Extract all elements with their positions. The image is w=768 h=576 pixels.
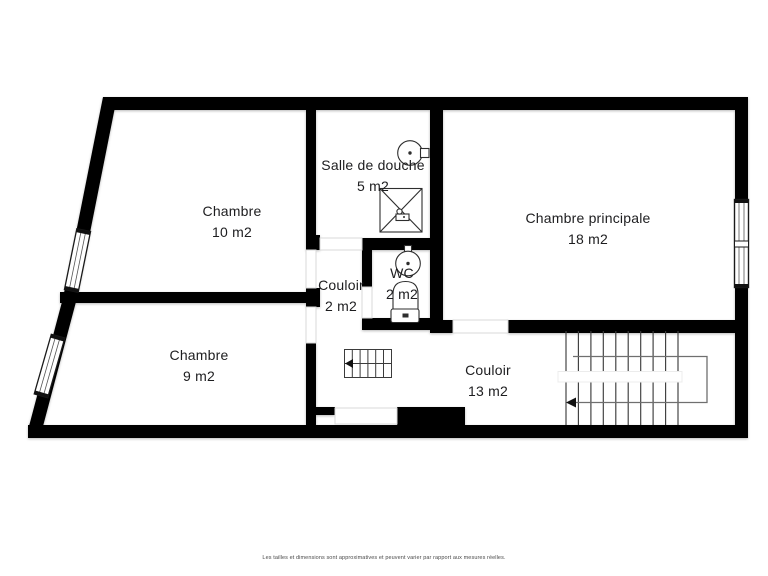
door-opening [306, 250, 316, 288]
fixtures-layer [380, 141, 429, 323]
small-staircase-icon [345, 350, 392, 378]
wall-right-upper [735, 97, 748, 200]
wall-couloir-left-top [306, 97, 316, 237]
wall-principale-left [430, 97, 443, 333]
walls-layer [28, 97, 748, 438]
door-opening [320, 238, 362, 250]
window [735, 200, 749, 288]
staircase-icon [558, 331, 707, 425]
door-opening [362, 287, 372, 318]
floor-plan-drawing [0, 0, 768, 576]
door-jamb [306, 288, 320, 307]
door-jamb [306, 235, 320, 250]
wall-entry-stub [306, 407, 335, 415]
window [64, 229, 90, 293]
sink-icon [398, 141, 429, 166]
wall-between-chambres [60, 292, 316, 303]
wall-top-exterior [103, 97, 748, 110]
stair-flight-break [558, 372, 682, 383]
wall-right-lower [735, 287, 748, 438]
door-jamb [443, 320, 453, 333]
floor-plan-page: Chambre 10 m2 Salle de douche 5 m2 Chamb… [0, 0, 768, 576]
wall-bottom-exterior [28, 425, 748, 438]
wall-entry-block [397, 407, 465, 438]
sink-icon [396, 246, 421, 276]
toilet-icon [391, 282, 419, 323]
direction-arrow-icon [566, 398, 576, 408]
shower-icon [380, 189, 422, 233]
wall-wc-left [362, 248, 372, 287]
door-opening [306, 307, 316, 343]
door-opening [335, 408, 397, 424]
window [34, 334, 65, 397]
door-opening [453, 320, 508, 333]
